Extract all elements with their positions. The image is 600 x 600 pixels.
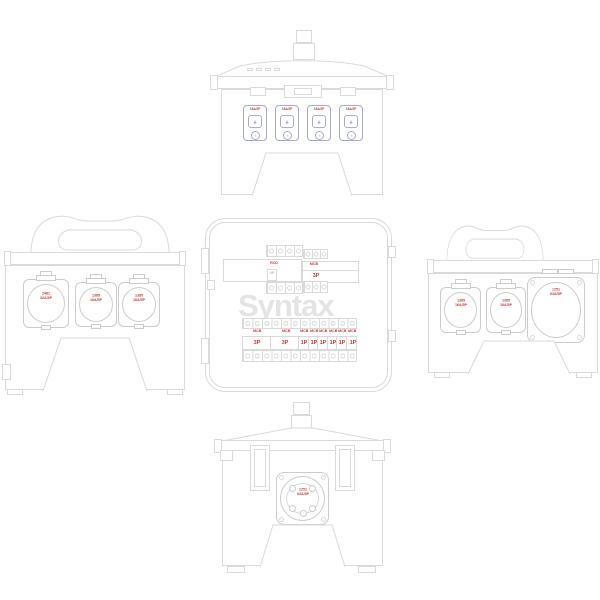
mcb-label: MCB [309, 262, 319, 266]
lid-rim [7, 252, 183, 265]
poles-label: 3P [251, 339, 263, 345]
lid-latch [201, 338, 209, 364]
leg-cutout [43, 338, 147, 391]
poles-label: 3P [279, 339, 291, 345]
rim-end-cap [4, 251, 11, 266]
latch-strap-inner [339, 449, 351, 487]
screw-icon [530, 335, 535, 340]
poles-label: 1P [346, 339, 358, 345]
lid-vent [256, 68, 262, 71]
rcd-poles-label: 4P [268, 271, 277, 275]
rim-end-cap [210, 75, 218, 90]
carry-handle [27, 212, 173, 254]
screw-icon [577, 280, 582, 285]
socket-earth-icon: + [315, 131, 324, 140]
foot [434, 372, 450, 378]
cee-socket-16a-icon: 138516A/5P [118, 282, 160, 327]
cee-socket-blue-icon: 16A/3P ▲ + [243, 105, 267, 141]
carry-handle [444, 222, 546, 262]
latch-tab [340, 87, 356, 96]
cee-socket-blue-icon: 16A/3P ▲ + [339, 105, 363, 141]
socket-latch [91, 324, 101, 329]
foot [167, 389, 183, 395]
rcd-terminals-bottom [266, 282, 303, 294]
breaker-3p: 3P [242, 336, 271, 350]
leg-cutout [252, 153, 352, 196]
screw-icon [577, 335, 582, 340]
socket-label: 125163A/5P [263, 488, 343, 506]
lid-hinge [207, 280, 215, 290]
lid-ridge [212, 58, 392, 78]
socket-pin-field-icon: ▲ [312, 115, 326, 128]
plate-divider [303, 270, 359, 271]
foot [576, 372, 592, 378]
socket-label: 138516A/5P [99, 294, 179, 312]
socket-pin-field-icon: ▲ [344, 115, 358, 128]
rcd-test-box: 4P [267, 269, 277, 281]
cee-socket-blue-icon: 16A/3P ▲ + [307, 105, 331, 141]
cee-socket-blue-icon: 16A/3P ▲ + [275, 105, 299, 141]
pin-icon [300, 510, 307, 517]
socket-pin-field-icon: ▲ [248, 115, 262, 128]
side-tab [2, 364, 11, 380]
foot [7, 389, 23, 395]
rcd-terminals-top [266, 245, 303, 257]
breaker-1p: 1P [346, 336, 358, 350]
lid-latch [201, 248, 209, 274]
mcb-label: MCB [253, 329, 260, 333]
rim-end-cap [592, 259, 599, 274]
cee-socket-63a-icon: 125163A/5P [527, 277, 585, 343]
screw-icon [279, 517, 284, 522]
rim-end-cap [179, 251, 186, 266]
lid-hinge [388, 246, 396, 258]
breaker-row-terminals-top [242, 318, 357, 329]
socket-latch [501, 330, 511, 335]
screw-icon [279, 475, 284, 480]
handle-stub-top [293, 402, 310, 415]
front-view: Syntax RCD 4P MCB 3P MCB MCB MCB MCB MCB… [205, 218, 392, 392]
socket-earth-icon: + [347, 131, 356, 140]
foot [358, 566, 376, 573]
socket-earth-icon: + [283, 131, 292, 140]
socket-pin-field-icon: ▲ [280, 115, 294, 128]
corner-block [372, 450, 385, 461]
latch-strap-inner [254, 449, 266, 487]
socket-label: 125163A/5P [516, 288, 596, 306]
handle-stub-top [296, 30, 312, 43]
socket-lid-hinge [451, 283, 471, 289]
latch-tab-inner [294, 88, 312, 95]
mcb-label: MCB [319, 329, 326, 333]
socket-lid-hinge [36, 275, 56, 281]
mcb-label: MCB [348, 329, 355, 333]
rim-end-cap [427, 259, 434, 274]
breaker-row-terminals-bottom [242, 350, 357, 362]
socket-lid-hinge [496, 283, 516, 289]
mcb-label: MCB [329, 329, 336, 333]
mcb-label: MCB [310, 329, 317, 333]
lid-vent [274, 68, 280, 71]
mcb-label: MCB [338, 329, 345, 333]
mcb-terminals-bottom [303, 281, 328, 293]
screw-icon [321, 517, 326, 522]
breaker-3p: 3P [270, 336, 299, 350]
latch-tab [250, 87, 266, 96]
leg-cutout [468, 341, 570, 374]
foot [227, 566, 245, 573]
screw-icon [530, 280, 535, 285]
drawing-canvas: 16A/3P ▲ + 16A/3P ▲ + 16A/3P ▲ + 16A/3P … [0, 0, 600, 600]
mcb-label: MCB [282, 329, 289, 333]
rcd-label: RCD [270, 261, 279, 265]
leg-cutout [260, 525, 345, 567]
lid-vent [247, 68, 253, 71]
socket-latch [134, 324, 144, 329]
rcd-label-plate: RCD 4P [223, 259, 302, 282]
socket-lid-hinge [542, 269, 558, 274]
rim-end-cap [386, 75, 394, 90]
screw-icon [321, 475, 326, 480]
socket-latch [41, 325, 51, 330]
breaker-row-body: 3P 3P 1P 1P 1P 1P 1P 1P [242, 336, 357, 350]
top-view: 16A/3P ▲ + 16A/3P ▲ + 16A/3P ▲ + 16A/3P … [212, 30, 392, 200]
mcb-label-plate: MCB 3P [302, 261, 359, 283]
bottom-view: 125163A/5P [215, 398, 390, 580]
socket-lid-hinge [558, 269, 574, 274]
mcb-poles-label: 3P [309, 272, 323, 278]
left-side-view: 248132A/5P 138516A/5P 138516A/5P [5, 212, 185, 397]
pin-icon [309, 505, 316, 512]
mcb-terminals-top [303, 249, 328, 259]
lid-hinge [388, 330, 396, 342]
corner-block [220, 450, 233, 461]
socket-earth-icon: + [251, 131, 260, 140]
mcb-label: MCB [300, 329, 307, 333]
right-side-view: 138516A/5P 138516A/5P 125163A/5P [428, 222, 598, 382]
socket-latch [456, 330, 466, 335]
socket-lid-hinge [86, 278, 106, 284]
lid-vent [265, 68, 271, 71]
cee-inlet-63a-icon: 125163A/5P [276, 472, 329, 525]
socket-lid-hinge [129, 278, 149, 284]
pin-icon [289, 505, 296, 512]
